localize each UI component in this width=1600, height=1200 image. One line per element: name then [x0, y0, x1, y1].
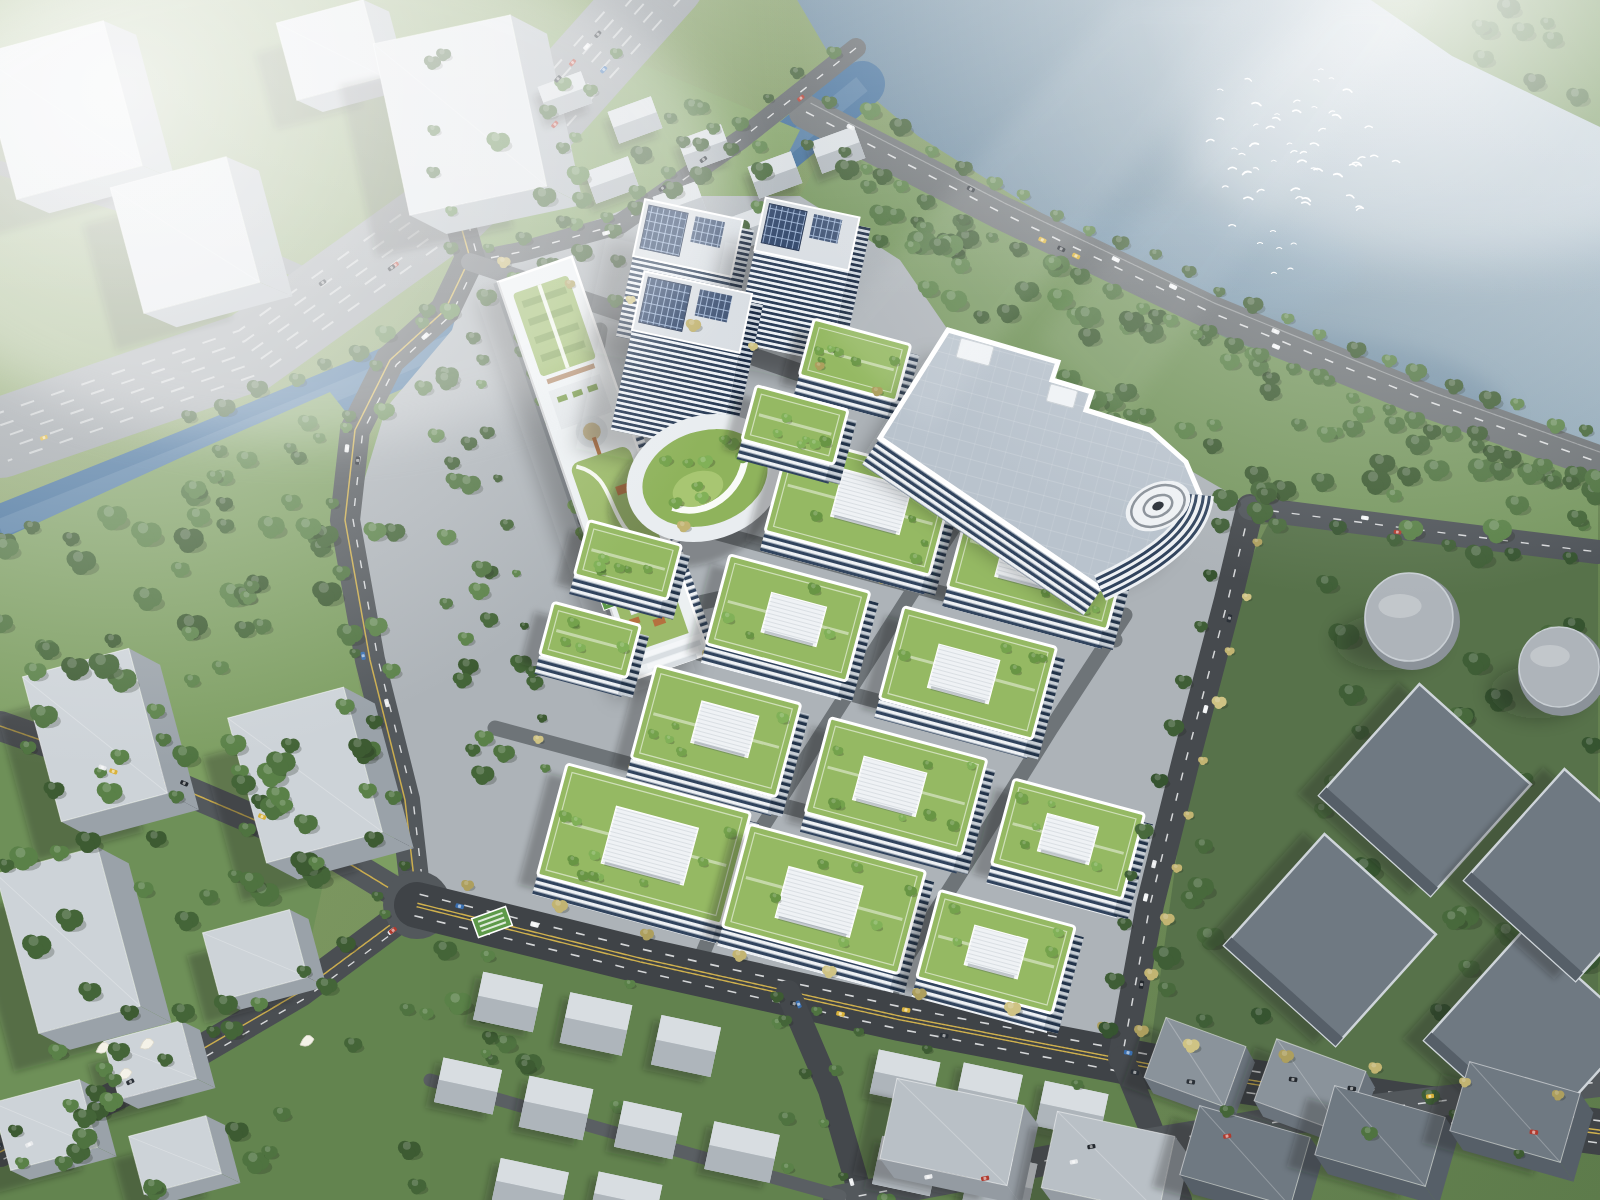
rendering-stage	[0, 0, 1600, 1200]
aerial-rendering	[0, 0, 1600, 1200]
top-haze	[0, 0, 1600, 300]
layer-atmosphere	[0, 0, 1600, 1200]
